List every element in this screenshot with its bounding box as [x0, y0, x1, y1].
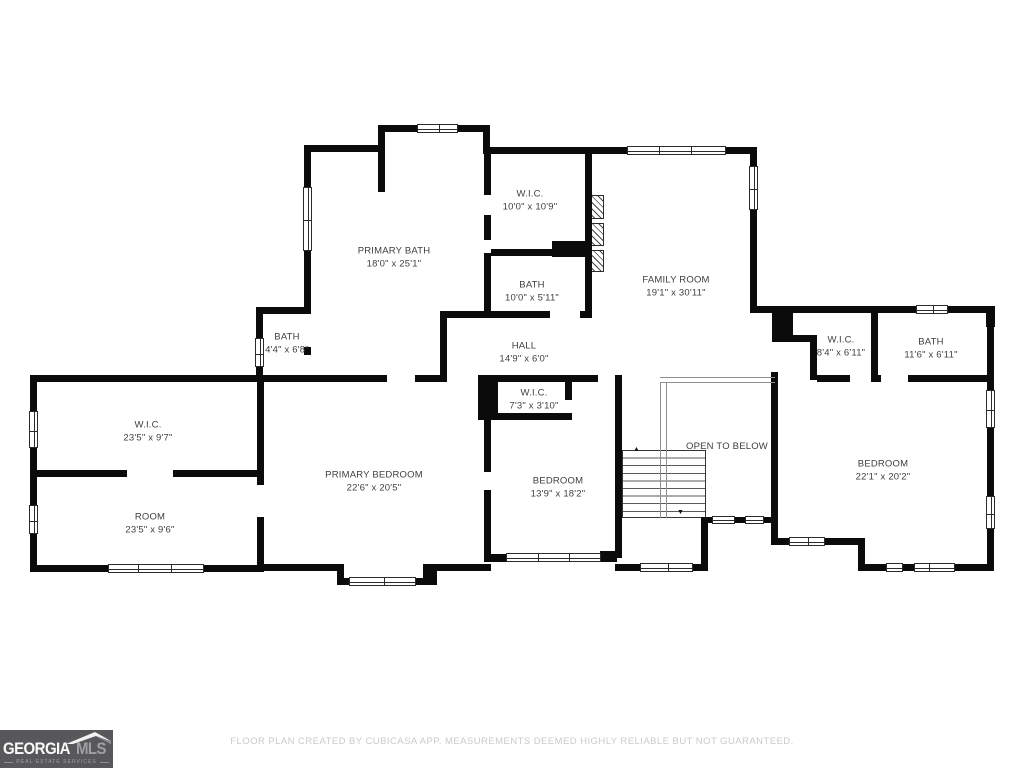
wall [484, 490, 491, 562]
stair-railing-line [660, 377, 775, 378]
window-icon [349, 577, 416, 586]
wall [565, 382, 572, 400]
wall [615, 564, 641, 571]
stairs-up-arrow: ▲ [633, 446, 640, 453]
wall [600, 554, 617, 562]
disclaimer-text: FLOOR PLAN CREATED BY CUBICASA APP. MEAS… [0, 736, 1024, 747]
wall [858, 564, 887, 571]
room-label-primary-bedroom: PRIMARY BEDROOM22'6" x 20'5" [325, 470, 423, 495]
stairs-down-arrow: ▼ [677, 509, 684, 516]
wall [491, 249, 552, 256]
wall [256, 307, 311, 314]
wall [954, 564, 994, 571]
wall [987, 427, 994, 497]
room-name: W.I.C. [509, 388, 558, 401]
wall [304, 152, 311, 189]
wall [575, 375, 598, 382]
room-dimensions: 19'1" x 30'11" [642, 287, 709, 300]
tagline-line [4, 762, 13, 763]
wall [257, 517, 264, 572]
window-icon [417, 124, 458, 133]
wall [771, 372, 778, 518]
wall [585, 147, 628, 154]
wall [440, 311, 484, 318]
window-icon [745, 516, 764, 524]
room-label-bath-4: BATH4'4" x 6'8" [265, 332, 309, 357]
room-name: W.I.C. [503, 189, 558, 202]
room-label-wic-8: W.I.C.8'4" x 6'11" [817, 335, 866, 360]
room-name: BATH [505, 280, 559, 293]
wall [615, 375, 622, 557]
window-icon [255, 338, 264, 367]
room-dimensions: 11'6" x 6'11" [904, 349, 957, 362]
wall [874, 375, 881, 382]
wall [772, 306, 793, 342]
wall [771, 538, 791, 545]
georgiamls-logo: GEORGIA MLS REAL ESTATE SERVICES [0, 730, 113, 768]
room-label-bath-10: BATH10'0" x 5'11" [505, 280, 559, 305]
wall [378, 125, 418, 132]
wall [585, 154, 592, 318]
logo-tagline-row: REAL ESTATE SERVICES [4, 759, 109, 765]
wall [30, 533, 37, 572]
room-dimensions: 10'0" x 5'11" [505, 292, 559, 305]
wall [202, 565, 264, 572]
wall [30, 382, 37, 412]
room-label-bedroom-22: BEDROOM22'1" x 20'2" [856, 459, 911, 484]
room-label-room: ROOM23'5" x 9'6" [125, 512, 174, 537]
logo-tagline: REAL ESTATE SERVICES [16, 759, 97, 765]
wall [378, 132, 385, 192]
room-name: BEDROOM [531, 476, 586, 489]
wall [173, 470, 264, 477]
room-dimensions: 22'6" x 20'5" [325, 482, 423, 495]
window-icon [640, 563, 693, 572]
roof-icon [66, 732, 112, 744]
room-name: HALL [499, 341, 548, 354]
room-name: BATH [904, 337, 957, 350]
window-icon [914, 563, 955, 572]
room-name: PRIMARY BATH [358, 246, 431, 259]
window-icon [303, 187, 312, 251]
window-icon [789, 537, 825, 546]
wall [256, 366, 263, 377]
wall [483, 147, 592, 154]
room-dimensions: 22'1" x 20'2" [856, 471, 911, 484]
wall [701, 517, 708, 571]
wall [256, 314, 263, 340]
room-name: W.I.C. [123, 420, 172, 433]
room-label-bath-11: BATH11'6" x 6'11" [904, 337, 957, 362]
wall [750, 209, 757, 313]
stair-railing-line [666, 382, 667, 518]
floor-plan: ▲ ▼ OPEN TO BELOW PRIMARY BATH18'0" x 25… [0, 0, 1024, 768]
room-dimensions: 14'9" x 6'0" [499, 353, 548, 366]
room-label-wic-7: W.I.C.7'3" x 3'10" [509, 388, 558, 413]
wall [817, 375, 850, 382]
room-dimensions: 10'0" x 10'9" [503, 201, 558, 214]
room-dimensions: 18'0" x 25'1" [358, 258, 431, 271]
room-dimensions: 23'5" x 9'6" [125, 524, 174, 537]
room-label-wic-10: W.I.C.10'0" x 10'9" [503, 189, 558, 214]
wall [552, 241, 588, 257]
window-icon [986, 390, 995, 428]
room-dimensions: 7'3" x 3'10" [509, 400, 558, 413]
stair-railing-line [660, 382, 661, 518]
room-label-hall: HALL14'9" x 6'0" [499, 341, 548, 366]
wall [484, 253, 491, 318]
room-name: FAMILY ROOM [642, 275, 709, 288]
window-icon [29, 505, 38, 534]
room-label-primary-bath: PRIMARY BATH18'0" x 25'1" [358, 246, 431, 271]
wall [484, 215, 491, 240]
stair-railing-line [660, 382, 775, 383]
wall [415, 375, 447, 382]
wall [440, 311, 447, 382]
tagline-line [100, 762, 109, 763]
window-icon [986, 496, 995, 529]
wall [478, 382, 498, 420]
wall [304, 145, 385, 152]
room-name: W.I.C. [817, 335, 866, 348]
wall [498, 413, 572, 420]
floor-plan-page: ▲ ▼ OPEN TO BELOW PRIMARY BATH18'0" x 25… [0, 0, 1024, 768]
wall [908, 375, 990, 382]
window-icon [29, 411, 38, 448]
logo-brand-primary: GEORGIA [3, 739, 70, 759]
room-dimensions: 13'9" x 18'2" [531, 488, 586, 501]
window-icon [506, 553, 601, 562]
wall [871, 313, 878, 382]
wall [725, 147, 757, 154]
window-icon [886, 563, 903, 572]
wall [414, 578, 437, 585]
wall [484, 311, 550, 318]
wall [691, 564, 708, 571]
room-label-bedroom-13: BEDROOM13'9" x 18'2" [531, 476, 586, 501]
wall [484, 154, 491, 195]
stairs [622, 450, 706, 518]
open-to-below-label: OPEN TO BELOW [686, 441, 768, 454]
wall [478, 375, 575, 382]
room-dimensions: 4'4" x 6'8" [265, 344, 309, 357]
window-icon [108, 564, 204, 573]
window-icon [712, 516, 735, 524]
room-dimensions: 23'5" x 9'7" [123, 432, 172, 445]
wall [30, 447, 37, 507]
wall [260, 564, 337, 571]
room-dimensions: 8'4" x 6'11" [817, 347, 866, 360]
wall [304, 250, 311, 313]
window-icon [749, 166, 758, 210]
wall [580, 311, 592, 318]
wall [264, 375, 387, 382]
logo-wordmark: GEORGIA MLS [3, 739, 109, 759]
window-icon [916, 305, 948, 314]
room-label-family-room: FAMILY ROOM19'1" x 30'11" [642, 275, 709, 300]
window-icon [627, 146, 726, 155]
room-name: BEDROOM [856, 459, 911, 472]
wall [30, 565, 110, 572]
room-label-wic-23: W.I.C.23'5" x 9'7" [123, 420, 172, 445]
room-name: PRIMARY BEDROOM [325, 470, 423, 483]
wall [30, 375, 264, 382]
room-name: BATH [265, 332, 309, 345]
wall [37, 470, 127, 477]
wall [430, 564, 491, 571]
room-name: ROOM [125, 512, 174, 525]
